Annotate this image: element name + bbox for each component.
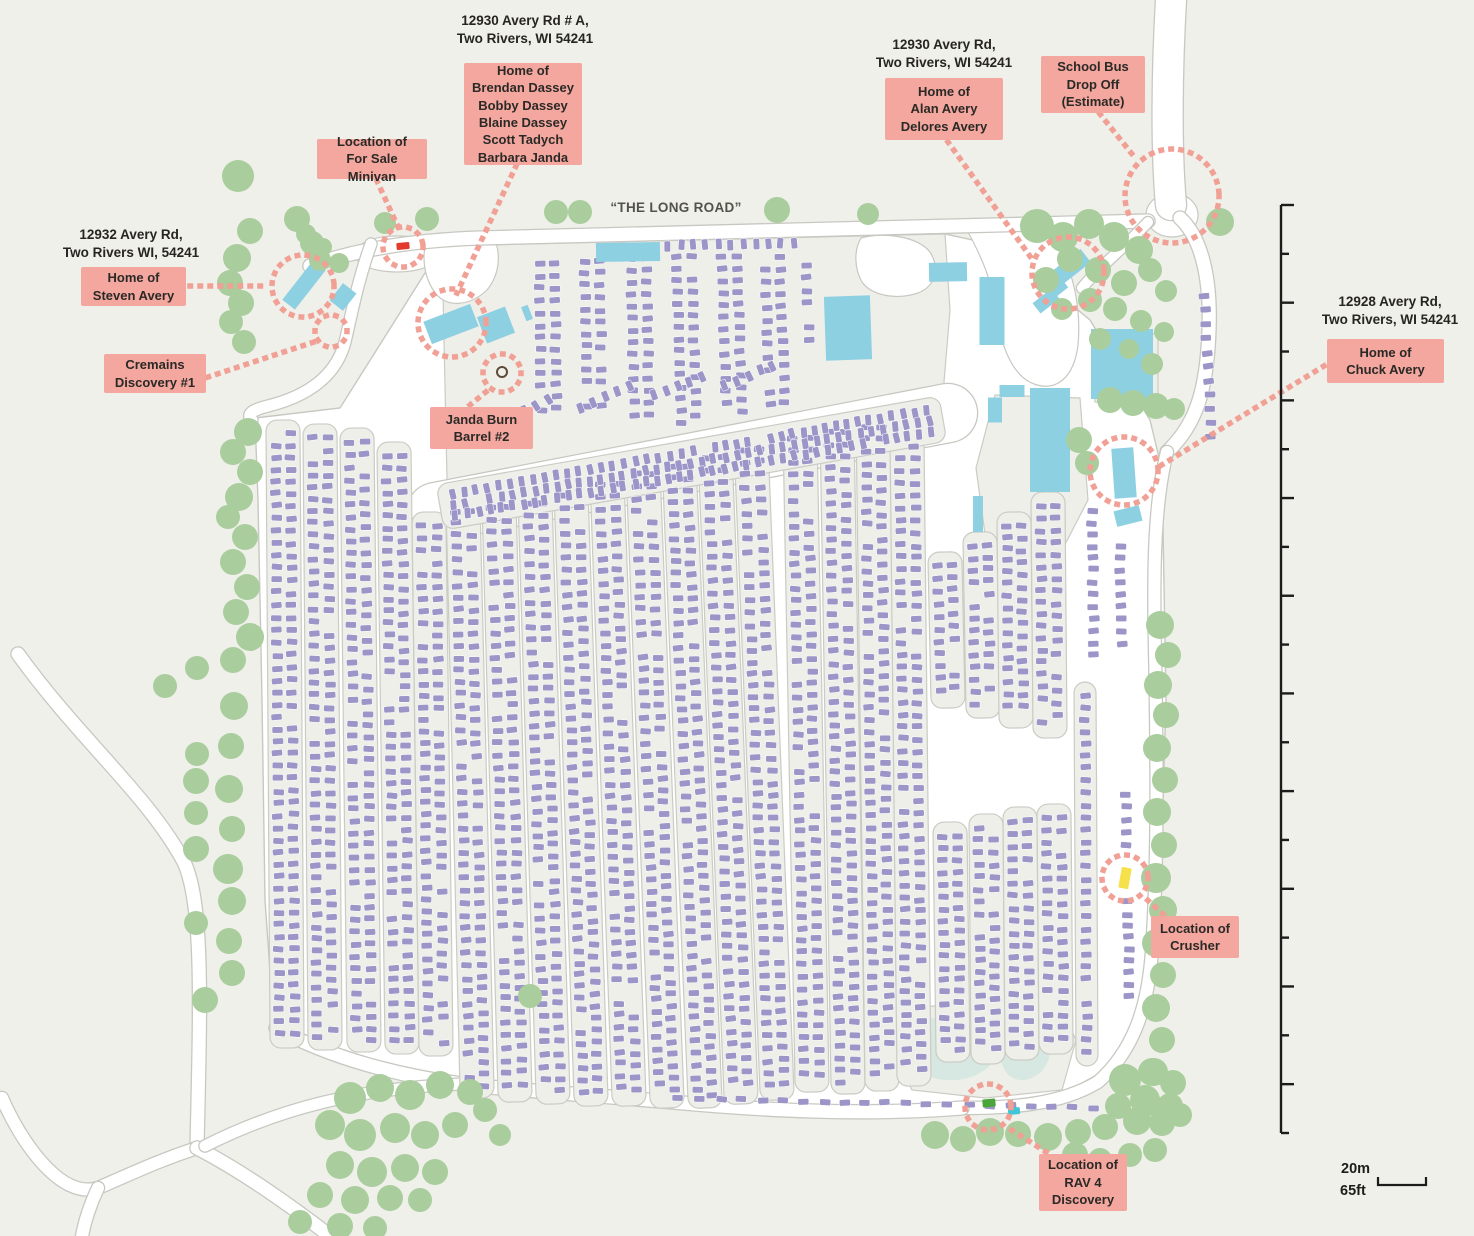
tree bbox=[223, 244, 251, 272]
junk-car bbox=[1024, 1043, 1035, 1050]
junk-car bbox=[349, 954, 360, 961]
junk-car bbox=[324, 691, 335, 698]
junk-car bbox=[832, 893, 843, 900]
junk-car bbox=[328, 1026, 339, 1033]
junk-car bbox=[640, 728, 651, 735]
junk-car bbox=[847, 946, 858, 953]
junk-car bbox=[1082, 1013, 1093, 1020]
junk-car bbox=[774, 996, 785, 1003]
junk-car bbox=[762, 340, 773, 347]
junk-car bbox=[744, 572, 755, 579]
junk-car bbox=[641, 266, 652, 273]
junk-car bbox=[764, 389, 776, 397]
junk-car bbox=[398, 586, 409, 593]
junk-car bbox=[877, 574, 888, 581]
junk-car bbox=[573, 948, 584, 955]
junk-car bbox=[812, 959, 823, 966]
junk-car bbox=[492, 739, 503, 745]
junk-car bbox=[704, 517, 715, 524]
junk-car bbox=[546, 782, 557, 789]
junk-car bbox=[1080, 862, 1091, 869]
junk-car bbox=[467, 571, 478, 578]
junk-car bbox=[458, 861, 469, 868]
junk-car bbox=[324, 728, 336, 736]
junk-car bbox=[528, 722, 540, 730]
junk-car bbox=[285, 478, 296, 485]
junk-car bbox=[544, 710, 555, 716]
junk-car bbox=[323, 507, 334, 514]
junk-car bbox=[1115, 591, 1127, 599]
junk-car bbox=[899, 930, 910, 936]
junk-car bbox=[1123, 992, 1134, 999]
junk-car bbox=[845, 776, 856, 783]
junk-car bbox=[696, 862, 707, 869]
junk-car bbox=[687, 952, 699, 960]
junk-car bbox=[640, 278, 651, 285]
junk-car bbox=[879, 807, 890, 814]
junk-car bbox=[604, 767, 615, 774]
junk-car bbox=[763, 693, 774, 700]
junk-car bbox=[637, 653, 649, 661]
junk-car bbox=[311, 1021, 322, 1028]
junk-car bbox=[324, 657, 335, 664]
junk-car bbox=[347, 720, 358, 727]
junk-car bbox=[688, 301, 699, 308]
junk-car bbox=[503, 553, 514, 559]
junk-car bbox=[831, 794, 842, 801]
junk-car bbox=[611, 939, 623, 946]
junk-car bbox=[682, 842, 693, 849]
junk-car bbox=[989, 962, 1000, 969]
junk-car bbox=[398, 599, 409, 605]
junk-car bbox=[591, 1063, 602, 1070]
junk-car bbox=[689, 239, 696, 251]
junk-car bbox=[308, 668, 319, 675]
junk-car bbox=[559, 505, 570, 512]
tree bbox=[489, 1124, 511, 1146]
junk-car bbox=[673, 607, 684, 614]
junk-car bbox=[673, 312, 684, 318]
junk-car bbox=[750, 729, 761, 736]
junk-car bbox=[862, 630, 873, 637]
junk-car bbox=[538, 549, 549, 556]
junk-car bbox=[798, 1058, 809, 1065]
junk-car bbox=[453, 666, 464, 673]
junk-car bbox=[651, 630, 662, 637]
junk-car bbox=[400, 826, 411, 833]
junk-car bbox=[286, 702, 297, 709]
junk-car bbox=[685, 915, 696, 922]
junk-car bbox=[529, 710, 541, 717]
junk-car bbox=[753, 238, 760, 249]
junk-car bbox=[1087, 544, 1098, 550]
junk-car bbox=[502, 540, 513, 547]
junk-car bbox=[841, 540, 852, 547]
junk-car bbox=[416, 535, 427, 541]
junk-car bbox=[866, 936, 877, 943]
junk-car bbox=[555, 1076, 566, 1083]
junk-car bbox=[912, 688, 923, 695]
junk-car bbox=[913, 785, 924, 791]
junk-car bbox=[325, 827, 336, 833]
junk-car bbox=[878, 648, 889, 655]
junk-car bbox=[511, 825, 522, 832]
junk-car bbox=[911, 615, 922, 622]
junk-car bbox=[437, 937, 449, 944]
junk-car bbox=[494, 788, 505, 794]
junk-car bbox=[772, 910, 783, 917]
junk-car bbox=[635, 582, 646, 589]
junk-car bbox=[810, 935, 821, 942]
junk-car bbox=[687, 337, 698, 344]
tree bbox=[442, 1112, 468, 1138]
junk-car bbox=[901, 1012, 912, 1019]
junk-car bbox=[1087, 604, 1098, 610]
junk-car bbox=[935, 663, 946, 670]
junk-car bbox=[625, 939, 637, 947]
junk-car bbox=[688, 990, 699, 997]
junk-car bbox=[788, 535, 799, 542]
junk-car bbox=[496, 910, 507, 916]
junk-car bbox=[672, 1095, 683, 1102]
junk-car bbox=[898, 734, 909, 741]
junk-car bbox=[532, 856, 543, 863]
junk-car bbox=[382, 535, 393, 542]
junk-car bbox=[345, 561, 356, 568]
junk-car bbox=[286, 664, 297, 671]
junk-car bbox=[807, 738, 819, 745]
junk-car bbox=[524, 561, 535, 568]
junk-car bbox=[1049, 514, 1060, 521]
junk-car bbox=[529, 734, 540, 741]
junk-car bbox=[883, 970, 894, 977]
junk-car bbox=[875, 448, 886, 454]
junk-car bbox=[806, 656, 817, 662]
junk-car bbox=[792, 744, 803, 751]
junk-car bbox=[642, 315, 654, 323]
junk-car bbox=[864, 788, 875, 794]
junk-car bbox=[939, 1001, 950, 1008]
tree bbox=[1149, 1027, 1175, 1053]
junk-car bbox=[419, 775, 430, 782]
junk-car bbox=[779, 361, 790, 368]
junk-car bbox=[897, 821, 909, 828]
junk-car bbox=[699, 884, 710, 891]
junk-car bbox=[1051, 673, 1062, 680]
junk-car bbox=[591, 1050, 602, 1057]
junk-car bbox=[762, 1032, 773, 1039]
junk-car bbox=[932, 575, 944, 583]
junk-car bbox=[724, 627, 735, 634]
junk-car bbox=[487, 555, 498, 562]
junk-car bbox=[797, 1022, 808, 1028]
junk-car bbox=[952, 845, 963, 852]
junk-car bbox=[901, 1022, 912, 1028]
junk-car bbox=[494, 801, 505, 808]
junk-car bbox=[508, 763, 519, 770]
junk-car bbox=[731, 810, 743, 818]
junk-car bbox=[914, 1029, 925, 1036]
junk-car bbox=[688, 1002, 699, 1009]
junk-car bbox=[772, 936, 783, 943]
tree bbox=[216, 928, 242, 954]
junk-car bbox=[542, 483, 550, 495]
junk-car bbox=[1016, 559, 1027, 566]
junk-car bbox=[732, 846, 744, 854]
junk-car bbox=[543, 733, 554, 740]
junk-car bbox=[675, 695, 686, 702]
junk-car bbox=[434, 778, 445, 784]
junk-car bbox=[616, 1083, 627, 1090]
tree bbox=[220, 439, 246, 465]
junk-car bbox=[669, 1086, 680, 1093]
junk-car bbox=[938, 1014, 949, 1021]
junk-car bbox=[494, 813, 505, 820]
junk-car bbox=[896, 723, 907, 730]
junk-car bbox=[982, 629, 993, 636]
junk-car bbox=[759, 972, 770, 979]
junk-car bbox=[968, 676, 979, 683]
junk-car bbox=[899, 905, 911, 913]
junk-car bbox=[896, 602, 907, 609]
junk-car bbox=[344, 464, 356, 472]
junk-car bbox=[687, 312, 698, 319]
junk-car bbox=[323, 583, 334, 590]
junk-car bbox=[509, 787, 520, 793]
junk-car bbox=[273, 799, 285, 806]
junk-car bbox=[638, 677, 650, 684]
junk-car bbox=[794, 778, 806, 786]
junk-car bbox=[759, 985, 770, 992]
tree bbox=[1138, 258, 1162, 282]
junk-car bbox=[1037, 695, 1049, 702]
junk-car bbox=[659, 811, 670, 818]
junk-car bbox=[451, 543, 462, 550]
junk-car bbox=[1037, 648, 1048, 655]
junk-car bbox=[617, 719, 628, 726]
junk-car bbox=[689, 361, 700, 368]
junk-car bbox=[421, 1016, 433, 1023]
junk-car bbox=[611, 976, 622, 982]
junk-car bbox=[397, 452, 408, 459]
junk-car bbox=[650, 570, 661, 577]
junk-car bbox=[1057, 938, 1069, 945]
junk-car bbox=[740, 238, 747, 249]
junk-car bbox=[911, 723, 922, 730]
junk-car bbox=[1051, 700, 1062, 707]
junk-car bbox=[896, 675, 907, 682]
tree bbox=[185, 742, 209, 766]
junk-car bbox=[398, 635, 409, 642]
junk-car bbox=[717, 278, 728, 285]
junk-car bbox=[796, 960, 807, 967]
junk-car bbox=[755, 850, 766, 857]
junk-car bbox=[749, 716, 760, 723]
junk-car bbox=[727, 689, 738, 696]
junk-car bbox=[982, 555, 993, 561]
junk-car bbox=[797, 986, 808, 992]
junk-car bbox=[744, 623, 755, 630]
junk-car bbox=[642, 475, 650, 487]
junk-car bbox=[676, 407, 688, 415]
junk-car bbox=[970, 688, 981, 695]
junk-car bbox=[607, 841, 618, 848]
junk-car bbox=[382, 619, 393, 626]
junk-car bbox=[706, 1079, 718, 1087]
junk-car bbox=[491, 678, 502, 685]
junk-car bbox=[270, 587, 281, 594]
junk-car bbox=[366, 952, 377, 958]
junk-car bbox=[493, 728, 504, 734]
junk-car bbox=[388, 987, 400, 994]
junk-car bbox=[686, 253, 697, 260]
junk-car bbox=[540, 1076, 551, 1083]
junk-car bbox=[434, 754, 445, 761]
junk-car bbox=[673, 323, 684, 330]
junk-car bbox=[775, 984, 786, 991]
tree bbox=[237, 459, 263, 485]
junk-car bbox=[811, 425, 819, 437]
junk-car bbox=[636, 631, 648, 639]
junk-car bbox=[727, 240, 734, 251]
junk-car bbox=[680, 806, 691, 813]
junk-car bbox=[876, 523, 887, 530]
junk-car bbox=[388, 964, 400, 971]
junk-car bbox=[779, 452, 787, 464]
junk-car bbox=[364, 940, 375, 947]
junk-car bbox=[1041, 827, 1052, 834]
junk-car bbox=[881, 855, 893, 862]
tree bbox=[1085, 257, 1111, 283]
junk-car bbox=[360, 511, 371, 518]
junk-car bbox=[644, 841, 656, 848]
junk-car bbox=[310, 959, 321, 966]
junk-car bbox=[650, 593, 661, 600]
junk-car bbox=[474, 924, 485, 931]
building bbox=[1000, 385, 1025, 397]
junk-car bbox=[864, 741, 875, 748]
junk-car bbox=[633, 556, 644, 563]
junk-car bbox=[397, 621, 408, 628]
junk-car bbox=[458, 874, 469, 881]
junk-car bbox=[420, 764, 431, 770]
junk-car bbox=[722, 577, 734, 585]
junk-car bbox=[1058, 999, 1069, 1006]
junk-car bbox=[512, 887, 523, 894]
junk-car bbox=[361, 673, 372, 680]
junk-car bbox=[975, 1038, 986, 1045]
junk-car bbox=[686, 276, 697, 283]
junk-car bbox=[382, 453, 393, 460]
junk-car bbox=[839, 1099, 850, 1106]
junk-car bbox=[727, 1065, 738, 1072]
junk-car bbox=[431, 572, 442, 579]
junk-car bbox=[631, 496, 643, 504]
tree bbox=[544, 200, 568, 224]
junk-car bbox=[936, 834, 947, 841]
junk-car bbox=[460, 936, 472, 944]
junk-car bbox=[421, 810, 433, 817]
junk-car bbox=[646, 888, 657, 895]
junk-car bbox=[347, 670, 359, 678]
junk-car bbox=[647, 519, 658, 526]
junk-car bbox=[932, 562, 944, 570]
junk-car bbox=[975, 1027, 986, 1034]
junk-car bbox=[471, 778, 482, 785]
junk-car bbox=[347, 795, 358, 802]
junk-car bbox=[938, 845, 949, 852]
junk-car bbox=[846, 875, 857, 882]
junk-car bbox=[825, 525, 836, 532]
junk-car bbox=[344, 526, 355, 533]
junk-car bbox=[323, 705, 334, 712]
junk-car bbox=[308, 543, 319, 550]
junk-car bbox=[1080, 692, 1092, 699]
junk-car bbox=[525, 600, 536, 607]
junk-car bbox=[600, 643, 611, 650]
junk-car bbox=[1003, 655, 1014, 662]
road bbox=[18, 654, 199, 1148]
junk-car bbox=[404, 1024, 416, 1031]
junk-car bbox=[914, 883, 925, 890]
junk-car bbox=[423, 1005, 434, 1012]
junk-car bbox=[895, 505, 906, 512]
junk-car bbox=[437, 1001, 448, 1008]
junk-car bbox=[615, 625, 626, 632]
junk-car bbox=[1022, 817, 1033, 824]
junk-car bbox=[968, 652, 979, 659]
junk-car bbox=[554, 481, 562, 493]
junk-car bbox=[650, 974, 662, 981]
junk-car bbox=[914, 993, 925, 1000]
junk-car bbox=[807, 704, 818, 711]
tree bbox=[1153, 702, 1179, 728]
junk-car bbox=[432, 523, 443, 530]
junk-car bbox=[459, 923, 471, 931]
junk-car bbox=[683, 879, 694, 886]
junk-car bbox=[730, 762, 741, 769]
junk-car bbox=[271, 639, 282, 646]
junk-car bbox=[578, 625, 589, 632]
junk-car bbox=[492, 691, 503, 698]
junk-car bbox=[420, 787, 431, 794]
junk-car bbox=[938, 976, 950, 984]
junk-car bbox=[619, 782, 630, 789]
junk-car bbox=[739, 470, 751, 477]
junk-car bbox=[884, 992, 896, 999]
junk-car bbox=[628, 1014, 639, 1021]
junk-car bbox=[467, 581, 479, 589]
car-row-island bbox=[412, 512, 453, 1056]
junk-car bbox=[288, 922, 300, 930]
junk-car bbox=[567, 777, 578, 783]
junk-car bbox=[735, 882, 746, 888]
junk-car bbox=[729, 749, 740, 756]
junk-car bbox=[952, 880, 963, 887]
junk-car bbox=[847, 995, 858, 1002]
junk-car bbox=[843, 689, 854, 696]
junk-car bbox=[630, 1038, 641, 1045]
junk-car bbox=[384, 656, 395, 663]
junk-car bbox=[667, 499, 678, 506]
junk-car bbox=[674, 370, 685, 377]
junk-car bbox=[288, 810, 299, 817]
junk-car bbox=[1087, 507, 1098, 514]
junk-car bbox=[740, 1019, 751, 1026]
junk-car bbox=[805, 554, 817, 562]
junk-car bbox=[933, 638, 945, 646]
junk-car bbox=[762, 305, 773, 312]
